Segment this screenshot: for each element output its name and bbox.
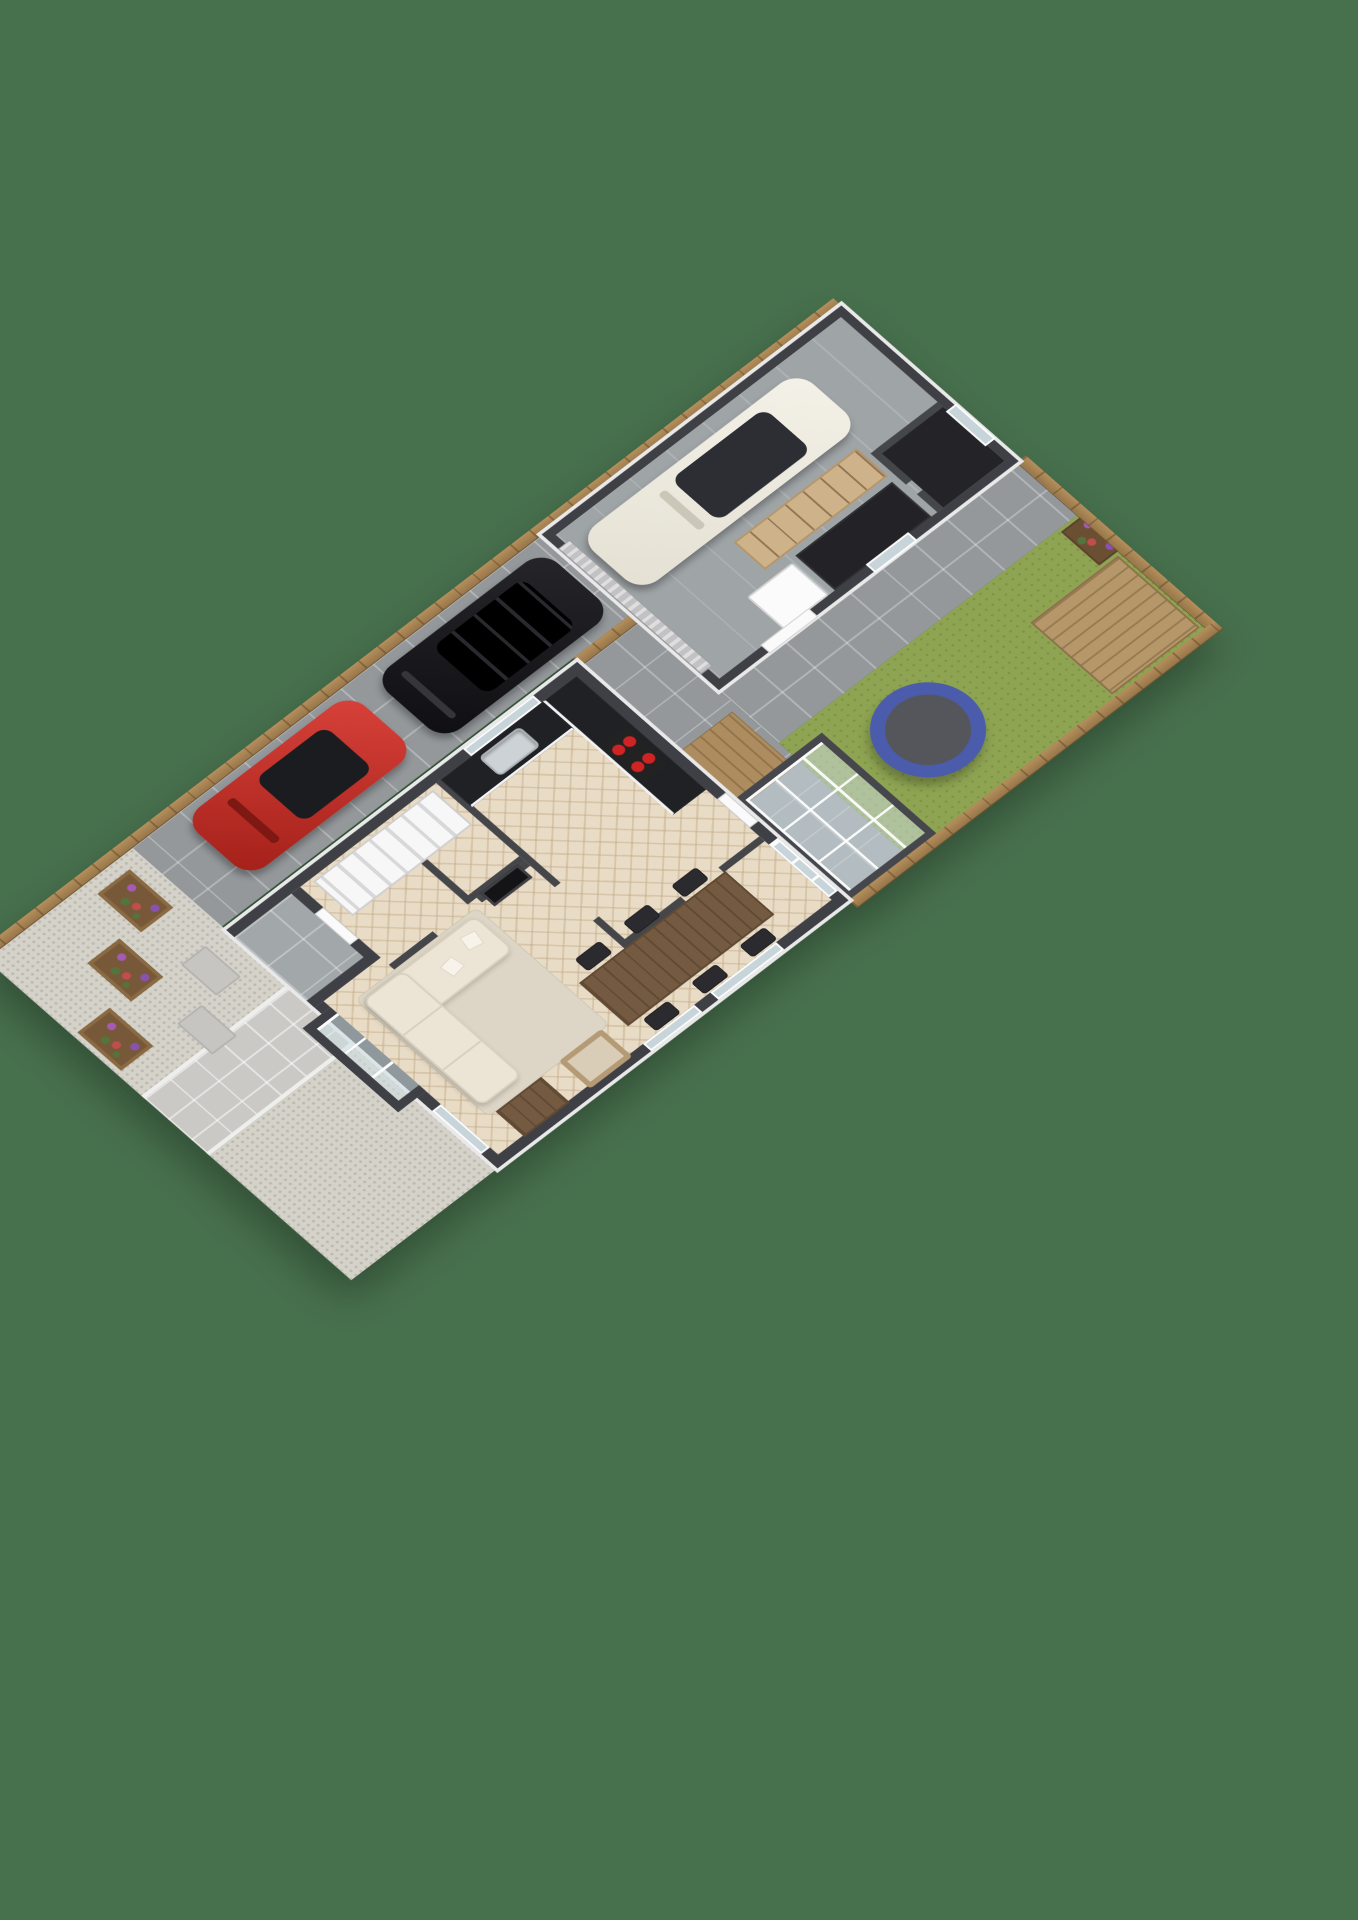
page-background: { "scene": { "type": "3d-floorplan-rende…: [0, 0, 1358, 1920]
sports-car-hood-line: [226, 797, 281, 845]
floorplan-stage: [0, 0, 1358, 1920]
sofa-pillow: [460, 930, 485, 950]
sofa-pillow: [440, 956, 465, 977]
plot-scene: [0, 293, 1222, 1288]
